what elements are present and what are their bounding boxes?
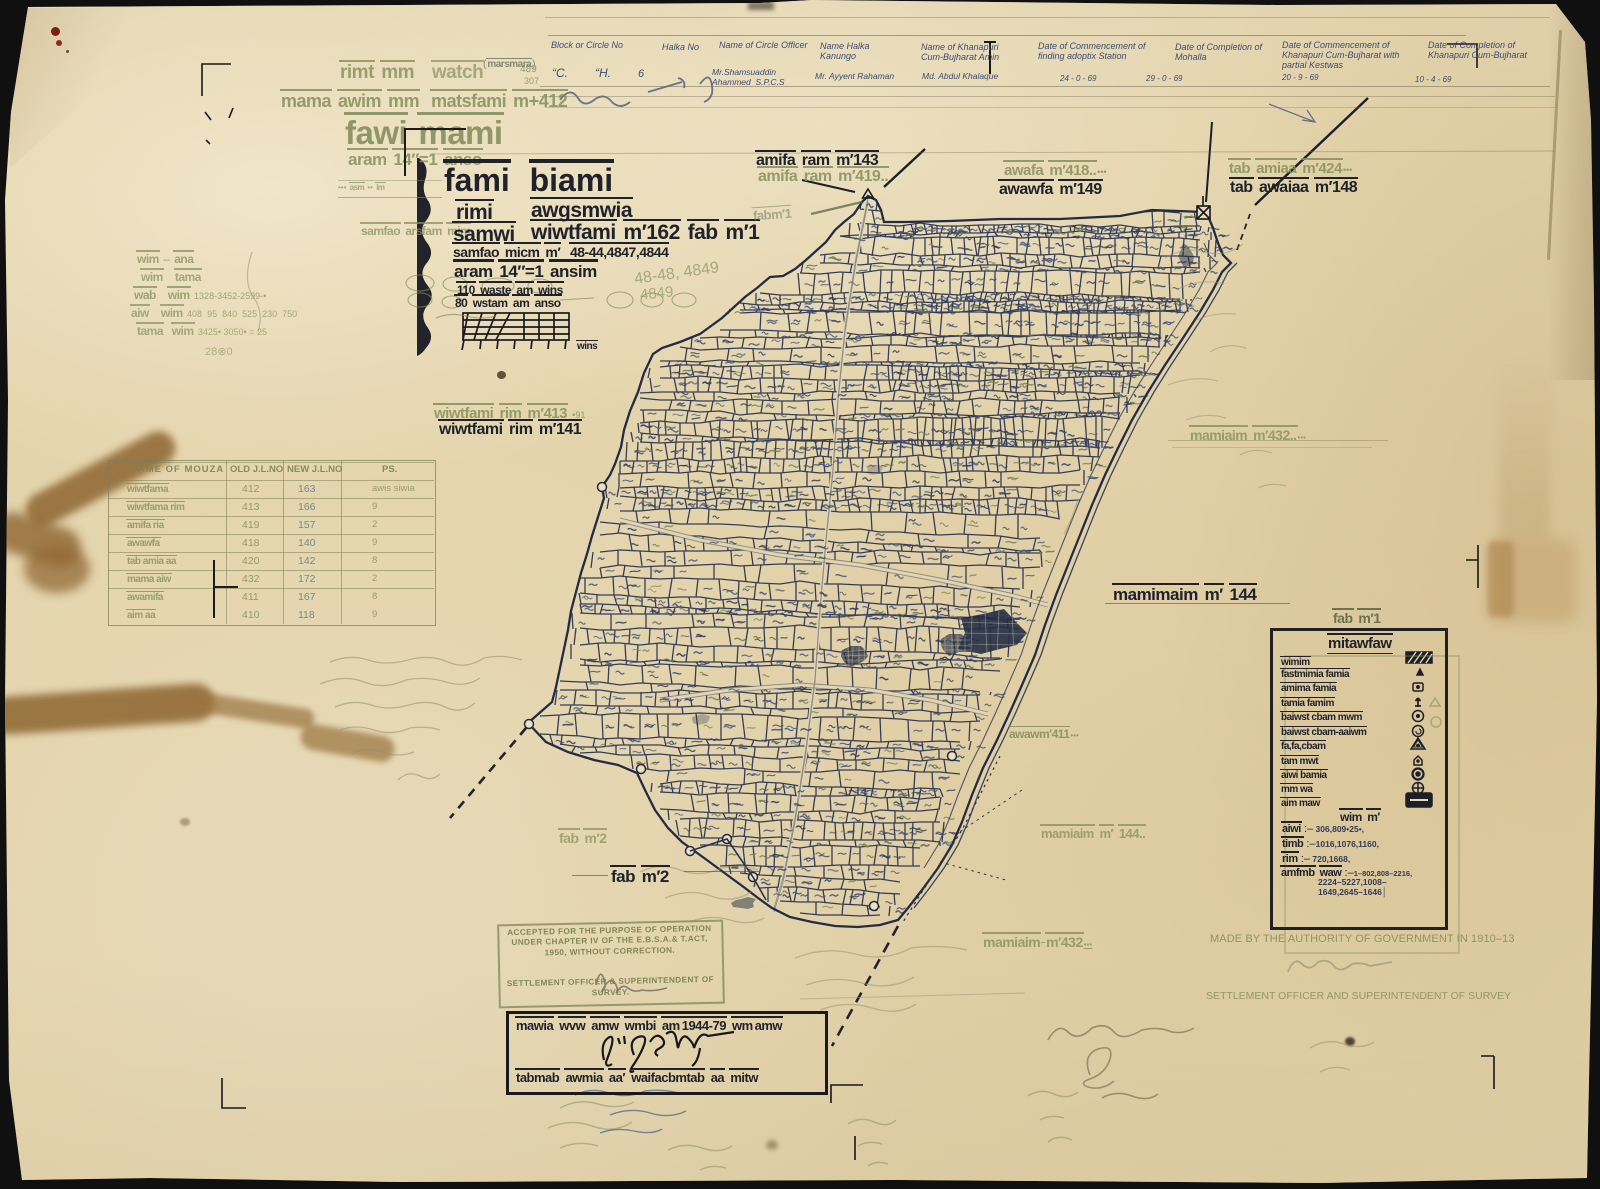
svg-text:307: 307 xyxy=(524,76,539,86)
